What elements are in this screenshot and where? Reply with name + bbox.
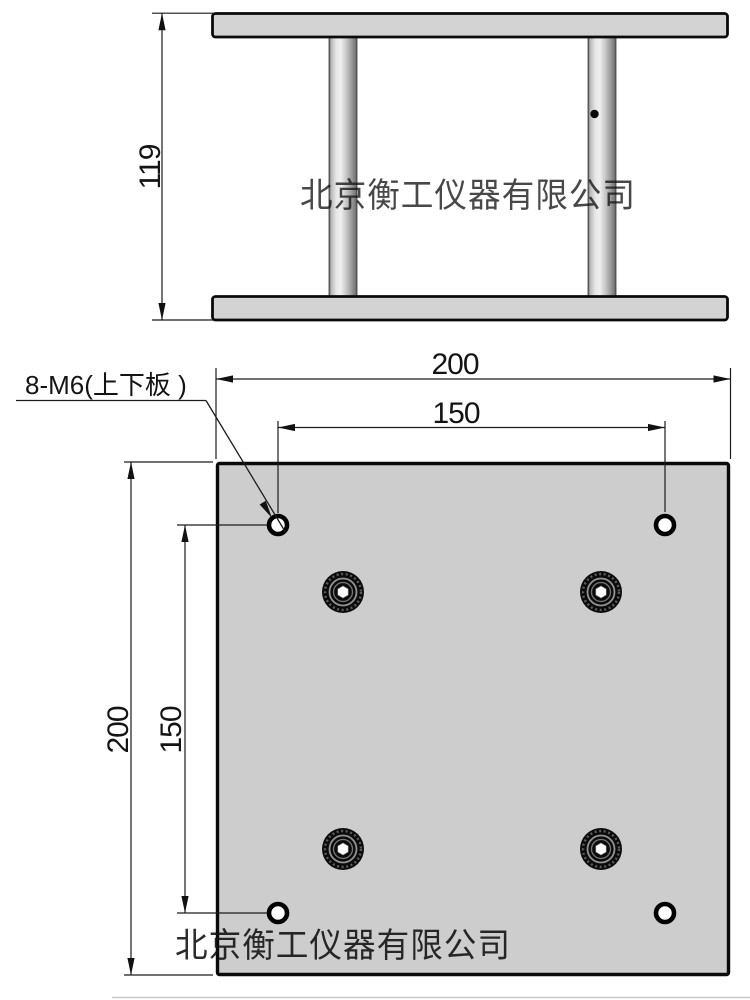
knob-top-right — [580, 571, 622, 613]
plan-view-plate — [218, 464, 729, 975]
m6-hole-bottom-right — [656, 904, 674, 922]
knob-hex-socket — [596, 586, 606, 598]
right-post — [588, 36, 616, 297]
dim-arrow-up — [127, 462, 134, 479]
dim-text-150-top: 150 — [432, 397, 479, 430]
dim-arrow-down — [158, 303, 165, 320]
knob-hex-socket — [596, 843, 606, 855]
dim-arrow-up — [181, 525, 188, 542]
side-view-bottom-plate — [213, 297, 728, 321]
dim-arrow-left — [278, 424, 295, 431]
technical-drawing-page: 119 北京衡工仪器有限公司 — [0, 0, 750, 1000]
dim-arrow-left — [216, 375, 233, 382]
knob-bottom-left — [322, 828, 364, 870]
drawing-svg: 119 北京衡工仪器有限公司 — [0, 0, 750, 1000]
dim-arrow-down — [181, 896, 188, 913]
dim-text-150-left: 150 — [155, 706, 188, 753]
knob-hex-socket — [338, 843, 348, 855]
left-post — [329, 36, 357, 297]
watermark-bottom: 北京衡工仪器有限公司 — [175, 927, 511, 965]
dim-arrow-right — [714, 375, 731, 382]
side-view-top-plate — [213, 14, 728, 38]
dim-arrow-down — [127, 958, 134, 975]
m6-hole-top-right — [656, 516, 674, 534]
dim-arrow-up — [158, 13, 165, 30]
knob-top-left — [322, 571, 364, 613]
side-view: 119 北京衡工仪器有限公司 — [134, 13, 728, 320]
dim-text-200-left: 200 — [102, 706, 135, 753]
dim-text-200-top: 200 — [431, 348, 478, 381]
m6-hole-bottom-left — [269, 904, 287, 922]
knob-hex-socket — [338, 586, 348, 598]
dim-text-119: 119 — [134, 144, 167, 189]
watermark-top: 北京衡工仪器有限公司 — [300, 177, 636, 215]
dim-arrow-right — [648, 424, 665, 431]
thread-callout-text: 8-M6(上下板 ) — [25, 370, 187, 400]
plan-view: 北京衡工仪器有限公司 200 150 20 — [16, 348, 731, 975]
post-set-hole — [590, 110, 598, 118]
knob-bottom-right — [580, 828, 622, 870]
